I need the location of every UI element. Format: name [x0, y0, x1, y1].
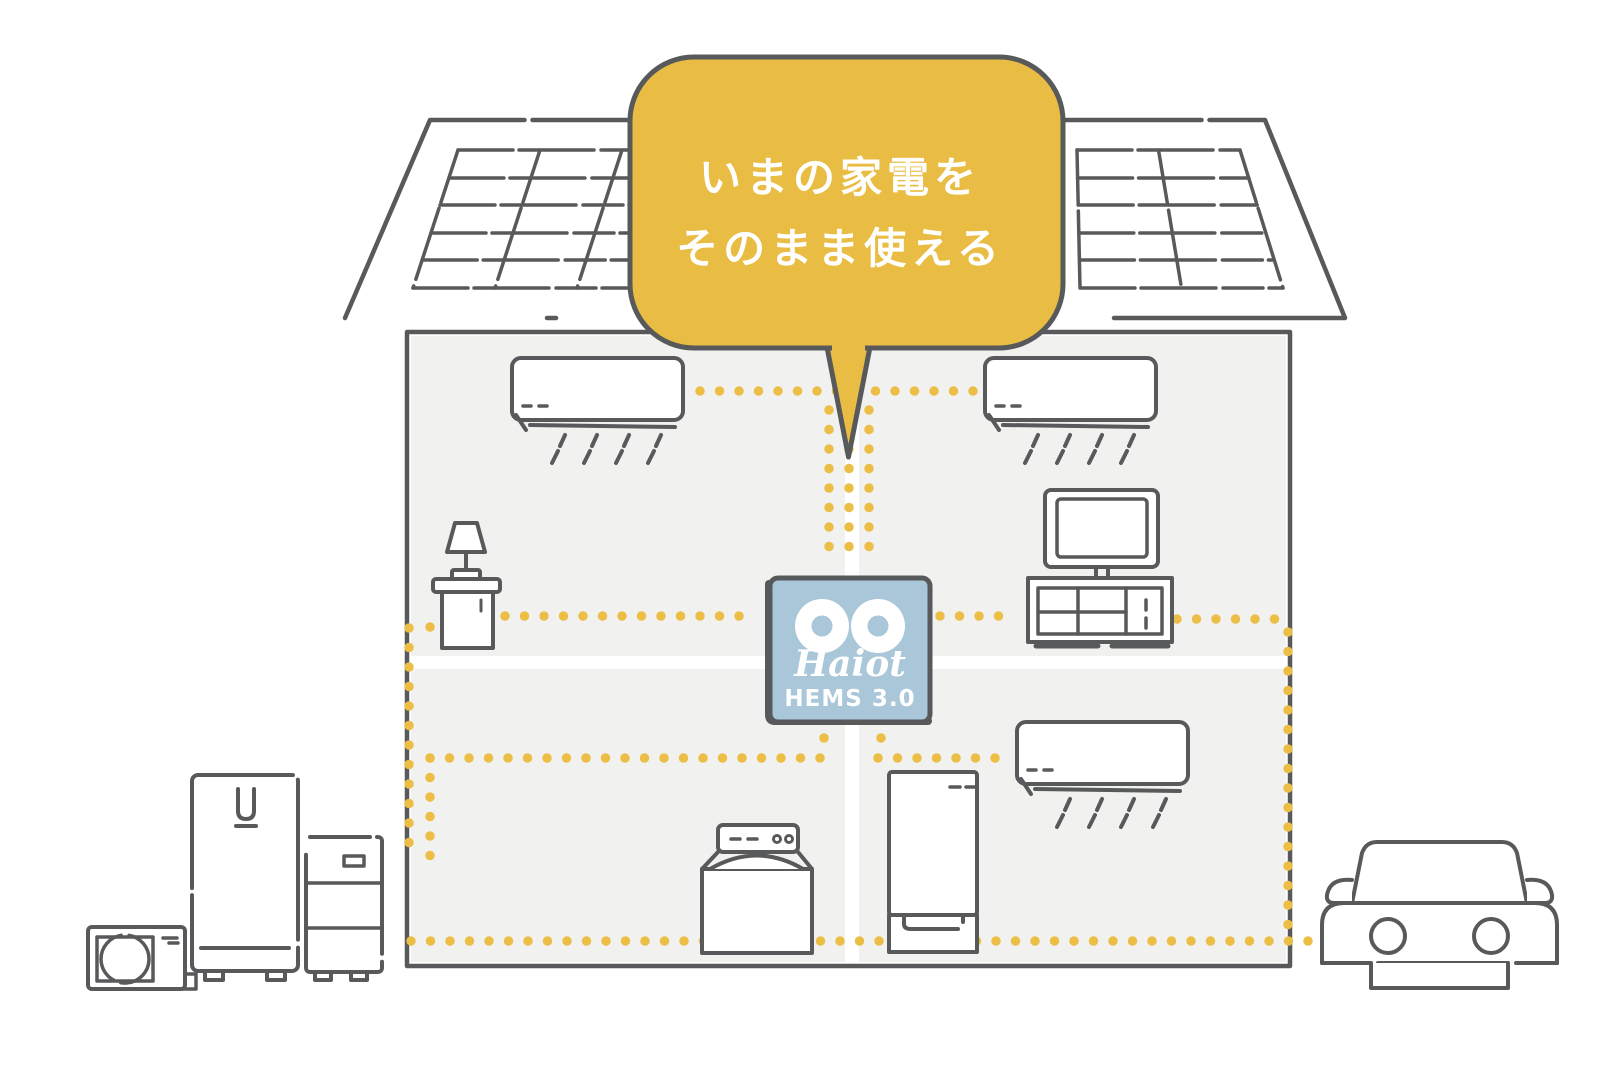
- speech-bubble-line2: そのまま使える: [676, 224, 1004, 273]
- storage-battery-icon: [306, 837, 382, 980]
- electric-car-icon: [1322, 842, 1557, 988]
- smart-home-illustration: Haiot HEMS 3.0: [0, 0, 1619, 1092]
- heat-pump-icon: [88, 927, 196, 989]
- hub-model: HEMS 3.0: [784, 686, 915, 712]
- side-table-icon: [433, 579, 500, 648]
- tv-icon: [1045, 490, 1158, 578]
- lamp-icon: [447, 523, 485, 579]
- water-heater-icon: [192, 775, 298, 980]
- speech-bubble-line1: いまの家電を: [699, 153, 981, 202]
- hems-hub: Haiot HEMS 3.0: [769, 578, 930, 722]
- refrigerator-icon: [889, 772, 977, 952]
- speech-bubble-body: [630, 57, 1063, 348]
- washing-machine-icon: [702, 825, 812, 953]
- tv-stand-icon: [1028, 578, 1172, 646]
- speech-bubble-tail-mask: [832, 338, 865, 352]
- hub-logo: Haiot: [793, 643, 906, 685]
- art-root: Haiot HEMS 3.0: [88, 57, 1557, 989]
